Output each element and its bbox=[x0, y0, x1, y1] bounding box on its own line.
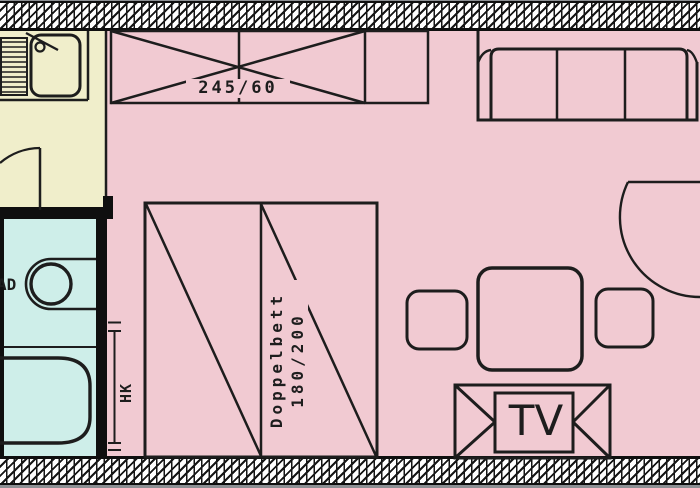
door-swing-arc bbox=[0, 148, 40, 163]
kitchen-counter bbox=[0, 31, 88, 100]
bed-label: Doppelbett 180/200 bbox=[266, 280, 308, 440]
toilet bbox=[26, 259, 96, 309]
chair-outline bbox=[596, 289, 653, 347]
tv-label: TV bbox=[496, 398, 576, 444]
chair-right bbox=[596, 289, 653, 347]
chair-left bbox=[407, 291, 467, 349]
drainer-stripes bbox=[2, 42, 26, 92]
bathtub-outline bbox=[0, 358, 90, 443]
table-outline bbox=[478, 268, 582, 370]
bed-name-label: Doppelbett bbox=[266, 280, 287, 440]
entrance-door bbox=[620, 182, 700, 297]
bathtub bbox=[0, 358, 90, 443]
plan-linework bbox=[0, 0, 700, 488]
kitchen-sink bbox=[31, 35, 80, 96]
sofa-outline bbox=[478, 31, 697, 120]
wall-stub bbox=[103, 196, 113, 219]
double-bed-180x200 bbox=[145, 203, 377, 457]
door-swing-arc bbox=[620, 182, 700, 297]
faucet-icon bbox=[36, 43, 45, 52]
floor-plan: 245/60 Doppelbett 180/200 HK TV AD bbox=[0, 0, 700, 488]
radiator-label: HK bbox=[116, 371, 136, 415]
sofa-cushion-dividers bbox=[557, 49, 625, 120]
sofa-seat bbox=[491, 49, 687, 120]
bed-dimension-label: 180/200 bbox=[287, 280, 308, 440]
bed-divider-and-diagonals bbox=[146, 203, 376, 457]
sofa bbox=[478, 31, 697, 120]
chair-outline bbox=[407, 291, 467, 349]
wardrobe-dimension-label: 245/60 bbox=[186, 79, 290, 98]
toilet-bowl bbox=[31, 264, 71, 304]
kitchen-door bbox=[0, 148, 40, 210]
bathroom-label: AD bbox=[0, 277, 27, 293]
sofa-armrests bbox=[478, 50, 697, 63]
dining-table bbox=[478, 268, 582, 370]
